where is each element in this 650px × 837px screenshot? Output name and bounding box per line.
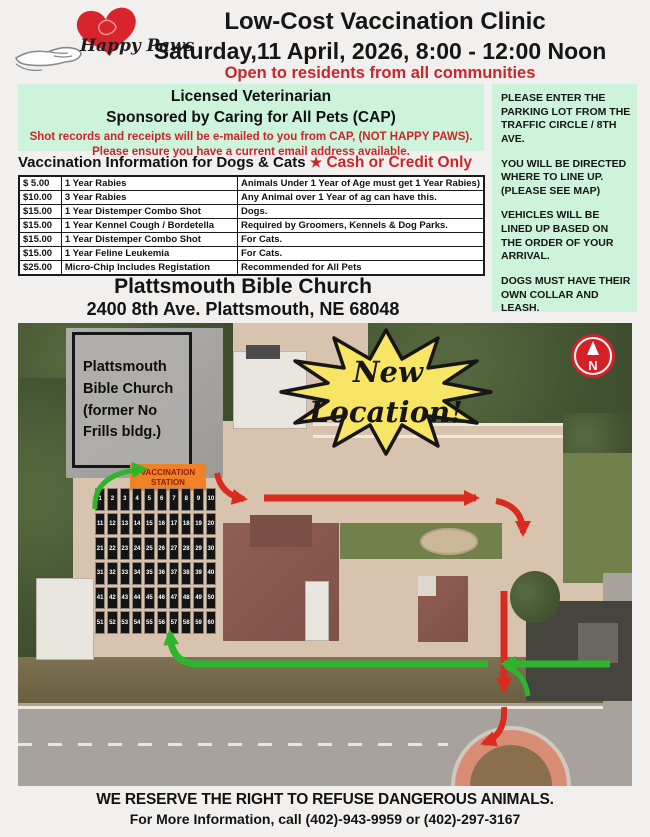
parking-spot: 42 [107,587,117,610]
table-cell: $ 5.00 [19,176,61,191]
table-cell: 1 Year Feline Leukemia [61,247,237,261]
hand-icon [16,48,81,71]
burst-text-location: Location! [308,395,463,429]
price-table-body: $ 5.001 Year RabiesAnimals Under 1 Year … [19,176,484,275]
building-label-line: Bible Church [83,379,185,401]
parking-spot: 39 [193,562,203,585]
licensed-vet-line: Licensed Veterinarian [18,87,484,108]
parking-spot: 58 [181,611,191,634]
building-label-line: Plattsmouth [83,357,185,379]
parking-spot: 28 [181,537,191,560]
parking-spot: 4 [132,488,142,511]
payment-note: Cash or Credit Only [326,154,472,171]
table-cell: $15.00 [19,219,61,233]
table-cell: $10.00 [19,191,61,205]
table-row: $15.001 Year Feline LeukemiaFor Cats. [19,247,484,261]
parking-spot: 10 [206,488,216,511]
parking-spot: 18 [181,513,191,536]
parking-spot: 54 [132,611,142,634]
white-building-left [36,578,94,660]
parking-spot: 60 [206,611,216,634]
small-building-roof-patch [418,576,436,596]
road-curb [18,706,632,709]
parking-spot: 41 [95,587,105,610]
table-row: $10.003 Year RabiesAny Animal over 1 Yea… [19,191,484,205]
compass-n-label: N [588,358,597,373]
parking-grid: 1234567891011121314151617181920212223242… [95,488,216,634]
table-cell: 1 Year Rabies [61,176,237,191]
parking-spot: 24 [132,537,142,560]
parking-spot: 32 [107,562,117,585]
price-table: $ 5.001 Year RabiesAnimals Under 1 Year … [18,175,485,276]
parking-spot: 46 [157,587,167,610]
records-notice: Shot records and receipts will be e-mail… [18,130,484,145]
side-panel-paragraph: PLEASE ENTER THE PARKING LOT FROM THE TR… [501,92,631,147]
tree-blob [510,571,560,623]
parking-spot: 37 [169,562,179,585]
parking-spot: 48 [181,587,191,610]
parking-spot: 14 [132,513,142,536]
parking-spot: 33 [120,562,130,585]
table-cell: 3 Year Rabies [61,191,237,205]
table-cell: $15.00 [19,233,61,247]
table-row: $ 5.001 Year RabiesAnimals Under 1 Year … [19,176,484,191]
table-cell: 1 Year Distemper Combo Shot [61,205,237,219]
parking-spot: 21 [95,537,105,560]
parking-spot: 20 [206,513,216,536]
side-panel-paragraph: YOU WILL BE DIRECTED WHERE TO LINE UP. (… [501,158,631,199]
parking-spot: 38 [181,562,191,585]
side-panel-paragraph: DOGS MUST HAVE THEIR OWN COLLAR AND LEAS… [501,275,631,316]
white-building-entry [246,345,280,359]
parking-spot: 7 [169,488,179,511]
parking-spot: 2 [107,488,117,511]
price-list-heading: Vaccination Information for Dogs & Cats … [18,154,485,172]
parking-spot: 9 [193,488,203,511]
parking-spot: 12 [107,513,117,536]
parking-spot: 13 [120,513,130,536]
station-line: STATION [130,478,206,488]
table-row: $15.001 Year Distemper Combo ShotFor Cat… [19,233,484,247]
parking-spot: 35 [144,562,154,585]
parking-spot: 44 [132,587,142,610]
contact-phone-line: For More Information, call (402)-943-995… [0,811,650,827]
church-gable [250,515,312,547]
parking-spot: 22 [107,537,117,560]
refuse-animals-notice: WE RESERVE THE RIGHT TO REFUSE DANGEROUS… [0,791,650,809]
parking-spot: 53 [120,611,130,634]
parking-spot: 19 [193,513,203,536]
side-panel-text: PLEASE ENTER THE PARKING LOT FROM THE TR… [492,84,637,312]
parking-spot: 23 [120,537,130,560]
table-cell: 1 Year Kennel Cough / Bordetella [61,219,237,233]
venue-name: Plattsmouth Bible Church [18,275,468,299]
playground [420,528,478,555]
parking-spot: 15 [144,513,154,536]
building-label: Plattsmouth Bible Church (former No Fril… [72,332,192,468]
star-icon: ★ [310,154,323,170]
table-cell: Recommended for All Pets [238,261,485,276]
table-cell: Required by Groomers, Kennels & Dog Park… [238,219,485,233]
flyer-page: Happy Paws Low-Cost Vaccination Clinic S… [0,0,650,837]
side-panel-paragraph: VEHICLES WILL BE LINED UP BASED ON THE O… [501,209,631,264]
sponsor-box: Licensed Veterinarian Sponsored by Carin… [18,84,484,151]
table-cell: $15.00 [19,247,61,261]
parking-spot: 34 [132,562,142,585]
vaccination-station-label: VACCINATION STATION [130,464,206,491]
open-to-all-note: Open to residents from all communities [130,64,630,83]
parking-spot: 45 [144,587,154,610]
sponsored-by-line: Sponsored by Caring for All Pets (CAP) [18,108,484,129]
parking-spot: 55 [144,611,154,634]
parking-spot: 56 [157,611,167,634]
parking-spot: 59 [193,611,203,634]
parking-spot: 57 [169,611,179,634]
parking-spot: 5 [144,488,154,511]
site-map: Plattsmouth Bible Church (former No Fril… [18,323,632,786]
table-row: $15.001 Year Distemper Combo ShotDogs. [19,205,484,219]
table-cell: $25.00 [19,261,61,276]
parking-spot: 49 [193,587,203,610]
dark-building-roof-patch [578,623,618,663]
parking-spot: 30 [206,537,216,560]
parking-spot: 3 [120,488,130,511]
table-cell: Animals Under 1 Year of Age must get 1 Y… [238,176,485,191]
parking-spot: 6 [157,488,167,511]
parking-spot: 25 [144,537,154,560]
compass-icon: N [570,333,616,379]
building-label-line: (former No [83,401,185,423]
parking-spot: 11 [95,513,105,536]
table-cell: $15.00 [19,205,61,219]
parking-spot: 1 [95,488,105,511]
venue-address: 2400 8th Ave. Plattsmouth, NE 68048 [18,299,468,320]
page-title: Low-Cost Vaccination Clinic [130,8,640,36]
parking-spot: 8 [181,488,191,511]
burst-text-new: New [352,355,424,389]
parking-spot: 47 [169,587,179,610]
table-cell: Micro-Chip Includes Registation [61,261,237,276]
parking-spot: 50 [206,587,216,610]
station-line: VACCINATION [130,468,206,478]
table-row: $15.001 Year Kennel Cough / BordetellaRe… [19,219,484,233]
parking-spot: 36 [157,562,167,585]
table-cell: Any Animal over 1 Year of ag can have th… [238,191,485,205]
price-list-heading-text: Vaccination Information for Dogs & Cats [18,154,306,171]
new-location-burst: New Location! [276,325,498,459]
event-datetime: Saturday,11 April, 2026, 8:00 - 12:00 No… [110,38,650,65]
table-cell: For Cats. [238,233,485,247]
road-lane-markings [18,743,448,746]
parking-spot: 16 [157,513,167,536]
parking-spot: 31 [95,562,105,585]
table-cell: Dogs. [238,205,485,219]
parking-spot: 27 [169,537,179,560]
building-label-line: Frills bldg.) [83,422,185,444]
parking-spot: 51 [95,611,105,634]
parking-spot: 26 [157,537,167,560]
parking-spot: 40 [206,562,216,585]
parking-spot: 43 [120,587,130,610]
parking-spot: 29 [193,537,203,560]
grass-right [563,453,632,583]
white-trailer [305,581,329,641]
table-row: $25.00Micro-Chip Includes RegistationRec… [19,261,484,276]
parking-spot: 17 [169,513,179,536]
table-cell: For Cats. [238,247,485,261]
parking-spot: 52 [107,611,117,634]
table-cell: 1 Year Distemper Combo Shot [61,233,237,247]
